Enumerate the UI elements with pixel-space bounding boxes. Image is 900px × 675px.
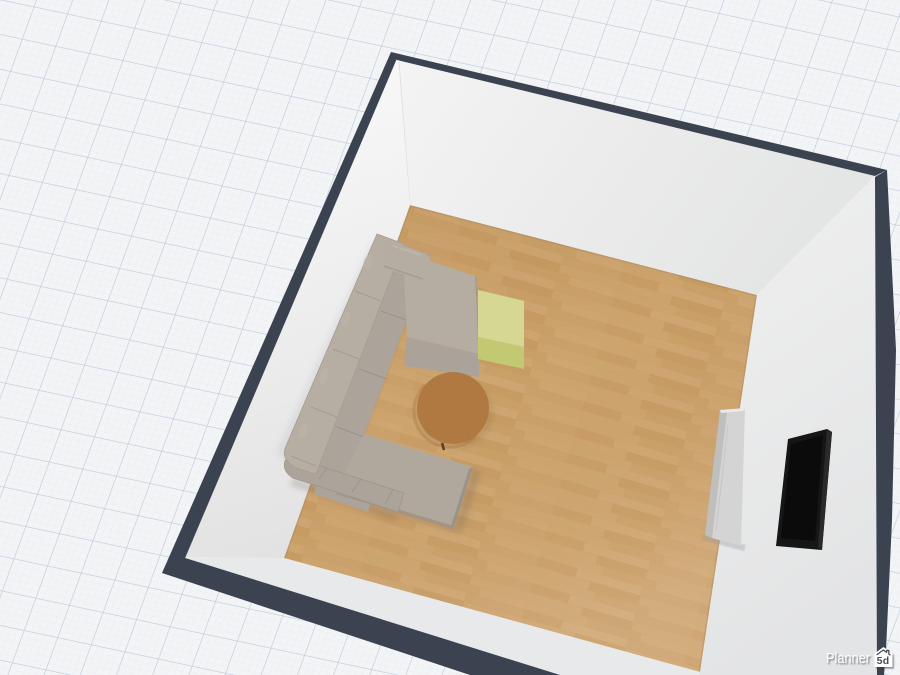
svg-text:5d: 5d — [877, 655, 890, 667]
svg-text:Planner: Planner — [826, 650, 870, 667]
